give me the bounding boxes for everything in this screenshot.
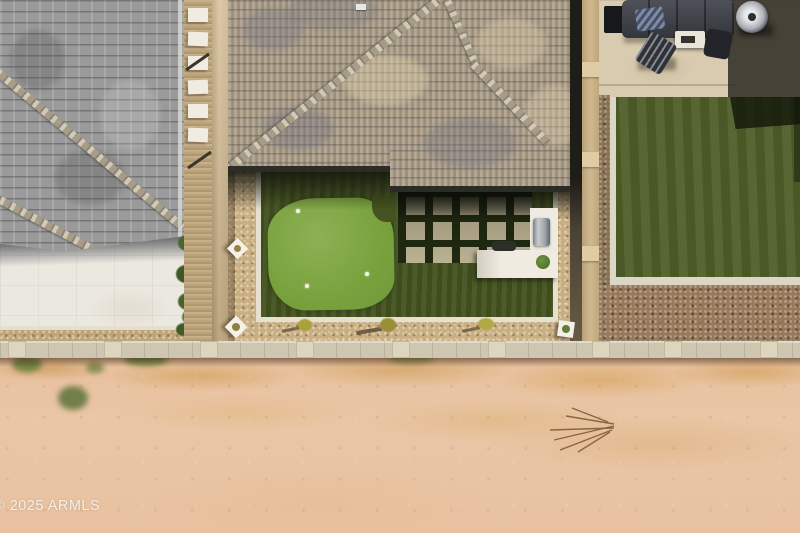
- patio-umbrella-top: [736, 1, 768, 33]
- left-house-roof: [0, 0, 184, 254]
- agave-plant: [380, 318, 396, 332]
- roof-shade-blotch: [10, 30, 65, 90]
- agave-plant: [298, 319, 312, 331]
- agave-plant: [478, 318, 494, 330]
- stepping-stone: [188, 80, 208, 95]
- side-gravel: [184, 0, 214, 345]
- aerial-backyard-photo: © 2025 ARMLS: [0, 0, 800, 533]
- roof-vent: [356, 4, 366, 10]
- boundary-wall: [582, 0, 599, 348]
- table-tray: [681, 36, 695, 43]
- wall-pilaster-cap: [296, 341, 314, 358]
- dead-branch: [548, 406, 622, 454]
- side-yard-strip: [184, 0, 230, 345]
- wall-pilaster-cap: [104, 341, 122, 358]
- wall-cast-shadow: [0, 358, 800, 367]
- turf-curb-bottom: [610, 277, 800, 285]
- wall-pilaster-cap: [664, 341, 682, 358]
- golf-hole: [305, 284, 309, 288]
- wall-column-cap: [582, 62, 599, 77]
- eave-fascia: [390, 186, 572, 192]
- stepping-stone: [188, 8, 208, 22]
- golf-hole: [365, 272, 369, 276]
- neighbor-gravel-strip: [599, 95, 610, 285]
- wall-pilaster-cap: [592, 341, 610, 358]
- boundary-shadow-gap: [570, 0, 582, 348]
- counter-shrub: [536, 255, 550, 269]
- patio-joint-line: [599, 84, 737, 86]
- weed-patch: [58, 386, 88, 410]
- left-roof-gutter: [178, 0, 182, 237]
- planter-plant: [232, 323, 240, 331]
- perimeter-wall: [0, 341, 800, 358]
- patio-side-table: [604, 6, 624, 33]
- striped-pillow: [635, 6, 666, 32]
- desert-noise: [0, 346, 800, 533]
- counter-stools: [492, 241, 516, 251]
- planter-plant: [234, 245, 241, 252]
- turf-curb-left: [610, 97, 616, 277]
- main-house-roof: [228, 0, 572, 192]
- watermark: © 2025 ARMLS: [0, 498, 100, 514]
- planter-plant: [562, 325, 570, 333]
- roof-light-blotch: [100, 80, 160, 150]
- wall-pilaster-cap: [8, 341, 26, 358]
- eave-fascia: [228, 166, 390, 172]
- wall-pilaster-cap: [200, 341, 218, 358]
- wall-column-cap: [582, 152, 599, 167]
- bbq-grill: [533, 218, 550, 246]
- stepping-stone: [188, 32, 208, 47]
- neighbor-gravel: [599, 285, 800, 343]
- roof-shade-blotch: [55, 150, 125, 205]
- stepping-stone: [188, 128, 208, 143]
- shadow-on-turf: [730, 97, 800, 129]
- wall-pilaster-cap: [488, 341, 506, 358]
- tile-cream-blotch: [476, 18, 546, 68]
- turf-edge-shade: [794, 97, 800, 182]
- wall-pilaster-cap: [392, 341, 410, 358]
- tile-gray-blotch: [424, 118, 516, 168]
- wall-column-cap: [582, 246, 599, 261]
- stepping-stone: [188, 104, 208, 118]
- patio-chair: [703, 28, 733, 60]
- wall-pilaster-cap: [760, 341, 778, 358]
